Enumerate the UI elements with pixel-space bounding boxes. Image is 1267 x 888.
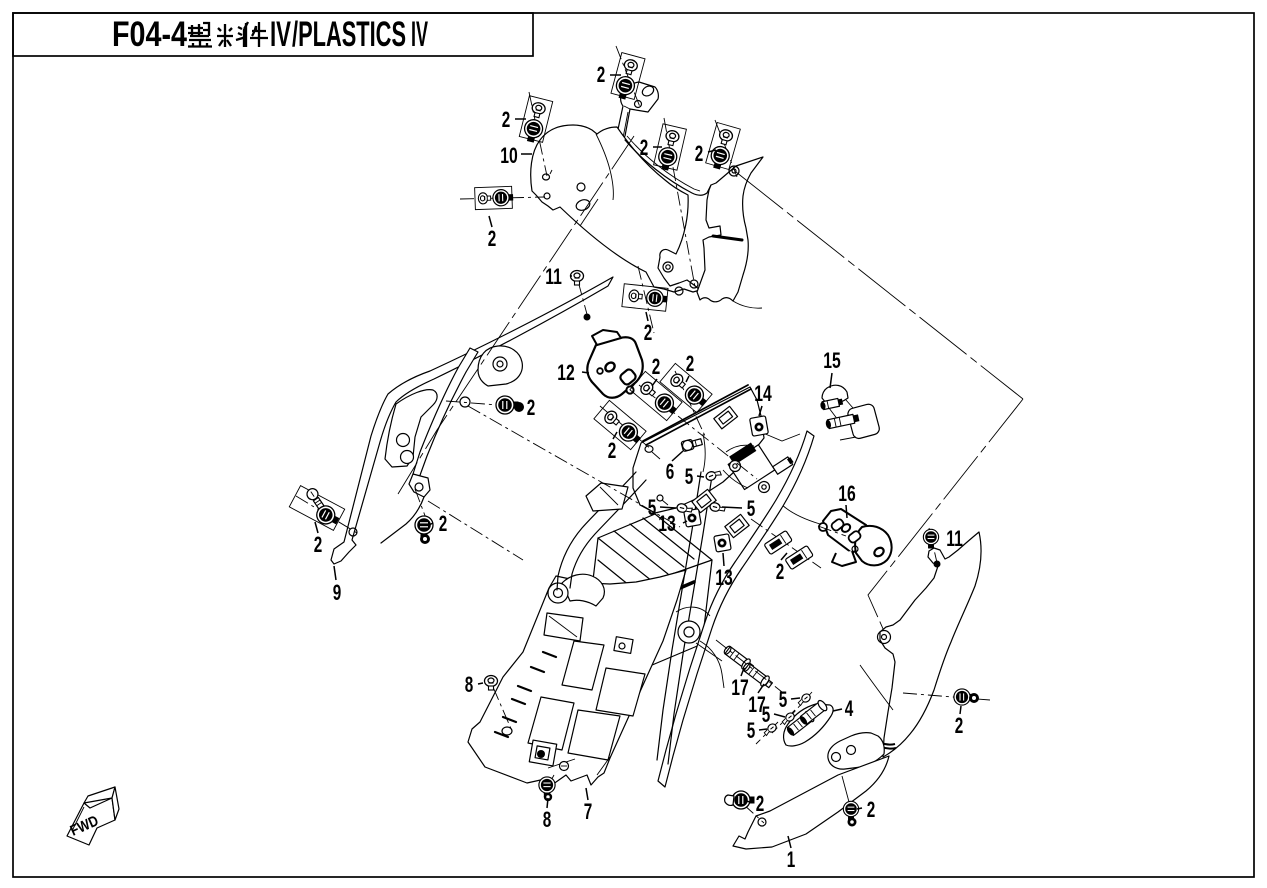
svg-text:10: 10 <box>500 143 517 169</box>
svg-text:13: 13 <box>658 511 676 537</box>
svg-text:2: 2 <box>695 142 704 167</box>
svg-text:IV: IV <box>270 15 291 54</box>
svg-text:17: 17 <box>731 675 748 701</box>
svg-text:13: 13 <box>715 565 733 591</box>
svg-text:15: 15 <box>823 348 841 374</box>
svg-text:5: 5 <box>648 496 657 521</box>
svg-text:2: 2 <box>527 396 536 421</box>
svg-text:5: 5 <box>685 465 694 490</box>
svg-text:2: 2 <box>652 355 661 380</box>
svg-text:/PLASTICS: /PLASTICS <box>292 15 406 54</box>
svg-text:16: 16 <box>838 481 856 507</box>
svg-text:12: 12 <box>557 360 575 386</box>
svg-text:11: 11 <box>946 526 963 552</box>
svg-text:2: 2 <box>608 439 617 464</box>
svg-text:14: 14 <box>754 381 772 407</box>
svg-text:2: 2 <box>502 108 511 133</box>
svg-text:IV: IV <box>411 15 428 54</box>
svg-text:2: 2 <box>644 321 653 346</box>
svg-text:2: 2 <box>756 792 765 817</box>
svg-text:2: 2 <box>867 798 876 823</box>
svg-text:4: 4 <box>845 697 854 722</box>
svg-text:F04-4: F04-4 <box>112 15 187 54</box>
svg-text:2: 2 <box>439 512 448 537</box>
svg-text:7: 7 <box>584 800 593 825</box>
svg-text:2: 2 <box>640 136 649 161</box>
svg-text:8: 8 <box>543 808 552 833</box>
svg-text:2: 2 <box>776 560 785 585</box>
svg-text:8: 8 <box>465 673 474 698</box>
svg-text:6: 6 <box>666 460 675 485</box>
svg-text:5: 5 <box>747 497 756 522</box>
svg-text:2: 2 <box>314 533 323 558</box>
svg-text:1: 1 <box>787 848 796 873</box>
svg-text:5: 5 <box>747 719 756 744</box>
svg-text:9: 9 <box>333 581 342 606</box>
svg-text:5: 5 <box>779 688 788 713</box>
svg-text:2: 2 <box>955 714 964 739</box>
svg-text:11: 11 <box>545 264 562 290</box>
svg-text:2: 2 <box>686 352 695 377</box>
svg-text:2: 2 <box>597 63 606 88</box>
svg-text:2: 2 <box>488 227 497 252</box>
svg-text:17: 17 <box>748 692 765 718</box>
